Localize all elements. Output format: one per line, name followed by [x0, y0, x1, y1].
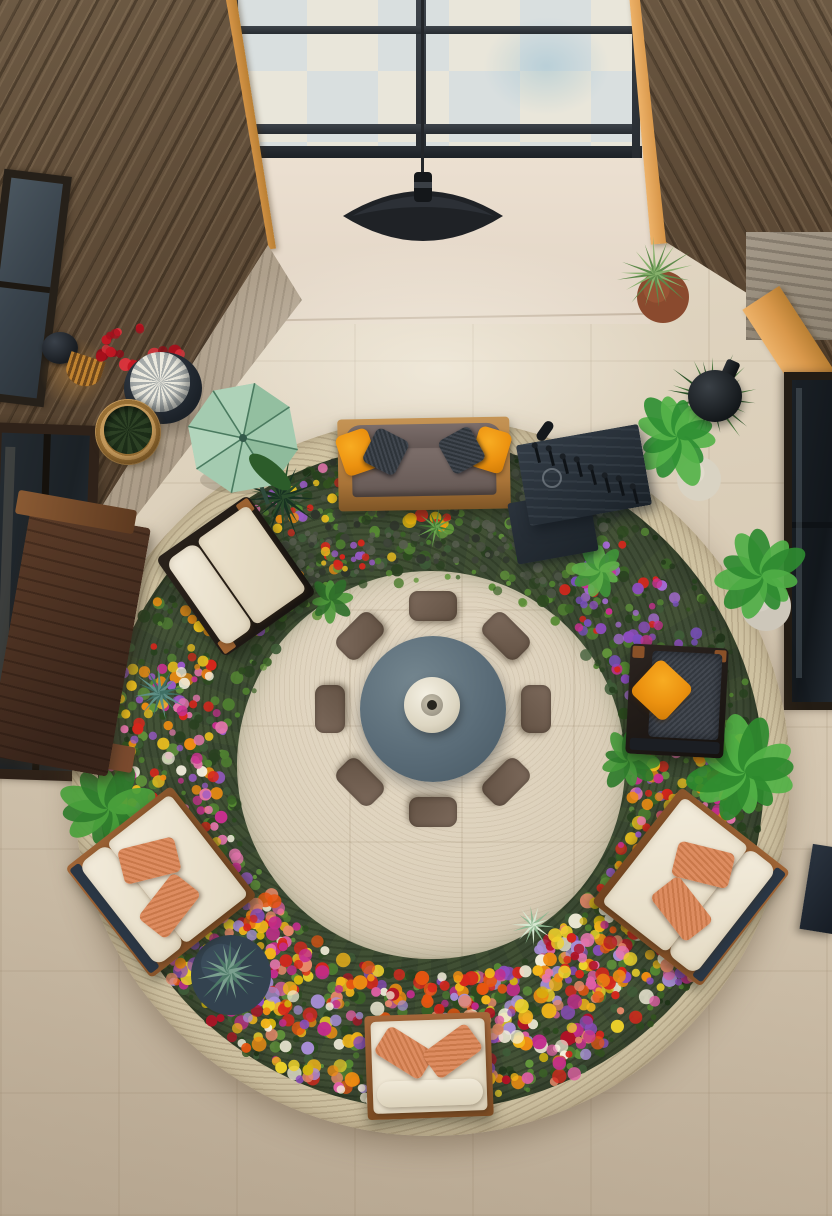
- basket-shadow: [96, 438, 170, 468]
- right-window-divider: [792, 522, 832, 528]
- black-bottle-vase: [688, 370, 742, 422]
- basket-plant: [104, 406, 152, 454]
- pendant-fitting: [414, 172, 432, 202]
- tool-pin: [534, 446, 541, 463]
- skylight-frame-right: [632, 0, 640, 158]
- floor-cushion: [332, 754, 387, 809]
- atrium-lounge-photo: [0, 0, 832, 1216]
- floor-cushion: [409, 591, 457, 621]
- umbrella-shadow: [200, 466, 288, 494]
- sofa: [337, 417, 511, 512]
- bench-bolster: [377, 1078, 484, 1108]
- console-table-leg: [94, 741, 136, 773]
- flower-pot-base: [124, 352, 202, 424]
- skylight-mullion-h2: [236, 124, 634, 134]
- tool-pin-head: [559, 453, 566, 460]
- floor-cushion: [521, 685, 551, 733]
- left-wood-wall: [0, 0, 270, 566]
- tool-pin: [590, 468, 597, 485]
- vase-opening: [427, 700, 437, 710]
- left-window-glass: [0, 178, 63, 399]
- inner-floor: [237, 571, 625, 959]
- tool-pin: [576, 460, 583, 477]
- right-skylight-beam: [629, 0, 675, 245]
- right-wood-wall: [640, 0, 832, 472]
- armchair-wood-corner-a: [632, 646, 645, 659]
- left-skylight-beam: [210, 0, 276, 252]
- floor-cushion: [409, 797, 457, 827]
- striped-vase: [130, 352, 190, 412]
- right-stone-panel: [746, 232, 832, 340]
- tool-pin-head: [629, 483, 636, 490]
- pendant-fitting-band: [414, 182, 432, 188]
- tool-pin-head: [545, 445, 552, 452]
- left-window: [0, 169, 72, 408]
- lounge-chair-left: [156, 495, 317, 658]
- lower-left-window: [0, 422, 100, 782]
- right-wall-beam: [742, 286, 832, 412]
- right-window: [784, 372, 832, 710]
- wood-console-table: [0, 507, 151, 776]
- loveseat-bottom-left: [65, 786, 257, 979]
- wall-floor-junction: [266, 313, 662, 322]
- center-table: [360, 636, 506, 782]
- workbench: [500, 420, 680, 580]
- tool-rack: [500, 420, 680, 580]
- floor-cushion: [478, 754, 533, 809]
- tool-pin-head: [531, 442, 538, 449]
- floor-cushion: [315, 685, 345, 733]
- lower-left-window-glass: [0, 433, 90, 772]
- loveseat-bottom-right: [592, 787, 791, 987]
- wall-sconce: [42, 332, 78, 364]
- tool-pin-head: [573, 456, 580, 463]
- skylight-mullion-h1: [236, 26, 634, 34]
- tool-pin: [632, 487, 639, 504]
- tool-pin-head: [601, 472, 608, 479]
- tool-pin: [548, 449, 555, 466]
- skylight-frame-left: [230, 0, 238, 158]
- tool-pin: [618, 479, 625, 496]
- vase-neck: [421, 694, 443, 716]
- ceramic-vase: [404, 677, 460, 733]
- table-shadow: [372, 652, 522, 782]
- garden-bench: [364, 1012, 494, 1120]
- sconce-cage: [62, 351, 106, 391]
- skylight-mullion-v: [416, 0, 426, 158]
- pendant-cord: [421, 0, 424, 182]
- right-window-glass: [792, 380, 832, 702]
- skylight-window: [236, 0, 634, 158]
- pendant-shade: [343, 191, 503, 241]
- armchair-right: [625, 644, 729, 759]
- vase-shadow: [118, 398, 214, 440]
- lower-left-window-divider: [32, 434, 51, 770]
- floor-cushion: [332, 608, 387, 663]
- back-wall: [230, 152, 650, 324]
- lower-left-window-reflection: [0, 447, 15, 747]
- left-window-pane-divider: [0, 281, 50, 293]
- console-table-edge: [15, 490, 137, 534]
- tool-pin: [562, 457, 569, 474]
- umbrella-leaf: [244, 448, 297, 497]
- sconce-glow: [40, 338, 110, 408]
- tool-pin: [604, 476, 611, 493]
- tool-pin-head: [615, 475, 622, 482]
- wicker-basket: [95, 399, 161, 465]
- tool-pin-head: [587, 464, 594, 471]
- pendant-lamp: [338, 168, 508, 268]
- bottle-vase-neck: [717, 358, 740, 387]
- skylight-sill: [230, 146, 642, 158]
- umbrella-canopy: [178, 372, 309, 504]
- dark-side-table-edge: [799, 844, 832, 934]
- pendant-sheen: [352, 196, 494, 216]
- right-window-reflection: [796, 388, 802, 678]
- floor-cushion: [478, 608, 533, 663]
